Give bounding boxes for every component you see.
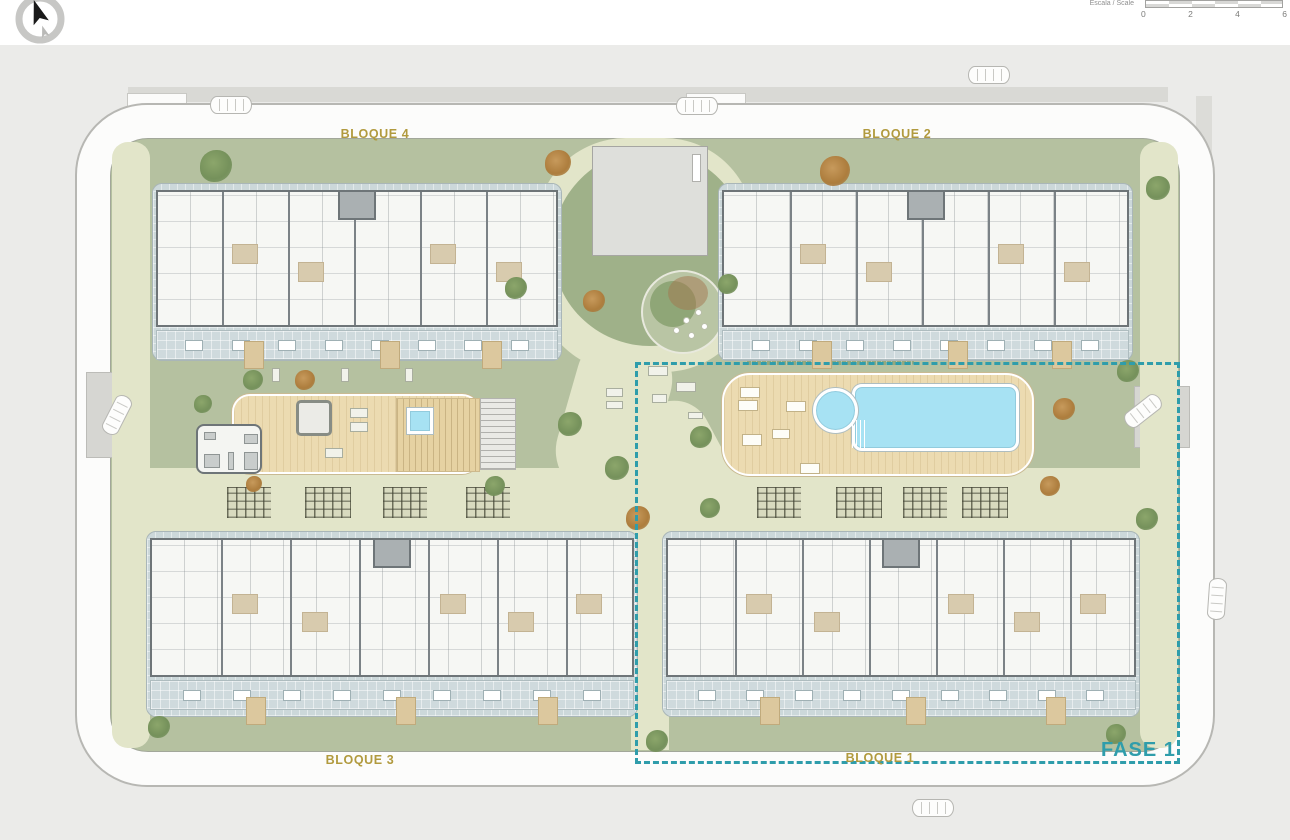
lounger xyxy=(183,690,201,701)
bathroom xyxy=(302,612,328,632)
fase-1-boundary xyxy=(635,362,1180,764)
scale-tick: 4 xyxy=(1235,9,1240,19)
fase-1-label: FASE 1 xyxy=(1101,739,1176,762)
jacuzzi-pool xyxy=(407,408,433,434)
lounger xyxy=(278,340,296,351)
lounger xyxy=(185,340,203,351)
building-block-bloque-2 xyxy=(718,183,1133,361)
bench xyxy=(272,368,280,382)
site-plan-page: FASE 1 BLOQUE 4 BLOQUE 2 BLOQUE 3 BLOQUE… xyxy=(0,0,1290,840)
planter xyxy=(244,341,264,369)
car xyxy=(676,97,718,115)
car xyxy=(912,799,954,817)
play-equipment xyxy=(695,309,702,316)
bathroom xyxy=(866,262,892,282)
lounger xyxy=(1034,340,1052,351)
lounger xyxy=(893,340,911,351)
lounger xyxy=(464,340,482,351)
car xyxy=(968,66,1010,84)
lounger xyxy=(333,690,351,701)
planter xyxy=(380,341,400,369)
stair-core xyxy=(338,190,376,220)
play-equipment xyxy=(688,332,695,339)
terrace-band xyxy=(150,680,634,710)
planter xyxy=(482,341,502,369)
lounger xyxy=(1081,340,1099,351)
lounger xyxy=(846,340,864,351)
scale-bar-graphic: 0 2 4 6 xyxy=(1141,0,1287,22)
deck-table xyxy=(325,448,343,458)
play-equipment xyxy=(683,317,690,324)
deck-pavilion xyxy=(296,400,332,436)
bathroom xyxy=(800,244,826,264)
garden-plot xyxy=(227,487,271,518)
deck-table xyxy=(350,422,368,432)
lounger xyxy=(987,340,1005,351)
playground-sand xyxy=(668,276,708,310)
car xyxy=(210,96,252,114)
play-equipment xyxy=(673,327,680,334)
scale-bar: Escala / Scale 0 2 4 6 xyxy=(1090,0,1287,22)
utility-door xyxy=(692,154,701,182)
label-bloque-2: BLOQUE 2 xyxy=(822,127,972,141)
block-floorplan xyxy=(722,190,1129,327)
lounger xyxy=(433,690,451,701)
gym-building xyxy=(196,424,262,474)
top-road xyxy=(128,87,1168,102)
compass-north-icon xyxy=(10,0,70,54)
bench xyxy=(606,401,623,409)
bench xyxy=(405,368,413,382)
scale-tick: 2 xyxy=(1188,9,1193,19)
scale-label: Escala / Scale xyxy=(1090,0,1134,7)
lounger xyxy=(752,340,770,351)
path-west xyxy=(112,142,150,748)
bathroom xyxy=(998,244,1024,264)
pergola-slats xyxy=(480,398,516,470)
building-block-bloque-3 xyxy=(146,531,638,717)
play-equipment xyxy=(701,323,708,330)
scale-tick: 6 xyxy=(1282,9,1287,19)
planter xyxy=(396,697,416,725)
deck-table xyxy=(350,408,368,418)
block-floorplan xyxy=(156,190,558,327)
utility-building xyxy=(592,146,708,256)
bench xyxy=(341,368,349,382)
lounger xyxy=(583,690,601,701)
bathroom xyxy=(232,244,258,264)
lounger xyxy=(483,690,501,701)
building-block-bloque-4 xyxy=(152,183,562,361)
planter xyxy=(538,697,558,725)
stair-core xyxy=(907,190,945,220)
garden-plot xyxy=(383,487,427,518)
lounger xyxy=(283,690,301,701)
playground xyxy=(641,270,725,354)
bathroom xyxy=(430,244,456,264)
bench xyxy=(606,388,623,397)
lounger xyxy=(325,340,343,351)
bathroom xyxy=(298,262,324,282)
planter xyxy=(246,697,266,725)
lounger xyxy=(511,340,529,351)
bathroom xyxy=(508,612,534,632)
car xyxy=(1207,577,1228,620)
label-bloque-3: BLOQUE 3 xyxy=(285,753,435,767)
lounger xyxy=(418,340,436,351)
label-bloque-4: BLOQUE 4 xyxy=(300,127,450,141)
block-floorplan xyxy=(150,538,634,677)
garden-plot xyxy=(305,487,351,518)
stair-core xyxy=(373,538,411,568)
bathroom xyxy=(232,594,258,614)
scale-tick: 0 xyxy=(1141,9,1146,19)
bathroom xyxy=(576,594,602,614)
bathroom xyxy=(1064,262,1090,282)
label-bloque-1: BLOQUE 1 xyxy=(805,751,955,765)
bathroom xyxy=(440,594,466,614)
